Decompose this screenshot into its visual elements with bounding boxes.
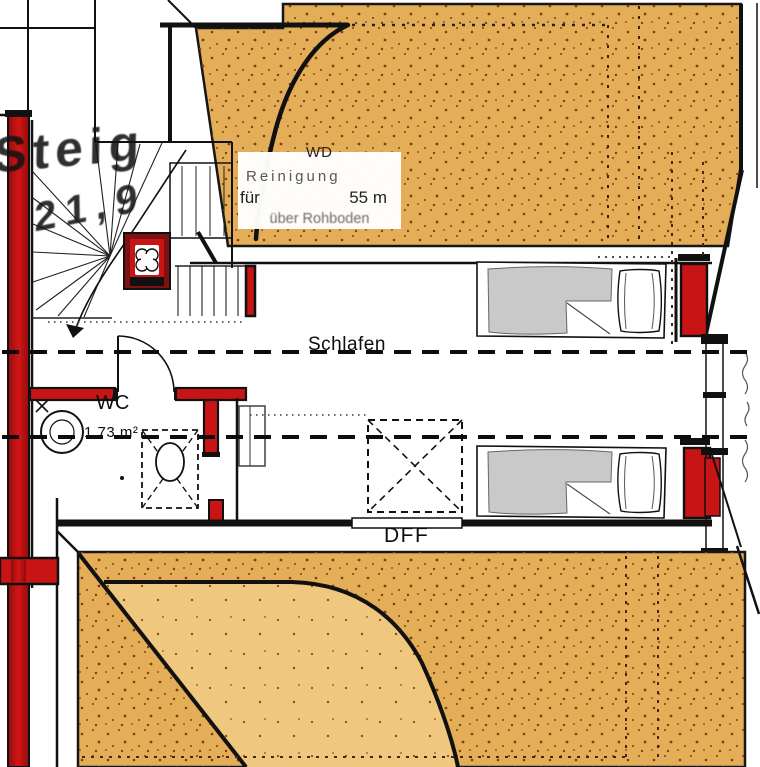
chimney-flue [136,249,158,271]
note-line-4: über Rohboden [238,211,401,227]
room-label-wc: WC [96,392,129,415]
note-line-3: für 55 m [238,188,401,208]
roof-window-label: DFF [384,524,429,548]
stair-arrow [66,324,84,338]
wall-red [0,558,58,584]
wall-red [705,458,720,516]
wall-red [681,264,707,336]
wall-red-stub [246,266,255,316]
wc-toilet [120,430,198,508]
door-arc [118,336,174,392]
annotation-note: WD Reinigung für 55 m über Rohboden [238,144,401,232]
wc-sink [36,400,83,453]
room-label-schlafen: Schlafen [308,334,386,356]
roof-window-projection [368,420,462,512]
note-line-1: WD [238,144,401,161]
chimney [124,233,170,289]
stair-treads-lower [175,266,246,316]
wall-red [204,400,218,454]
illegible-side-text [743,352,750,482]
roof-area-bottom [78,546,759,767]
note-line-3-right: 55 m [349,188,387,208]
note-line-3-left: für [240,188,260,208]
bed-1 [477,262,666,338]
note-line-2: Reinigung [238,168,401,185]
floorplan-attic: Schlafen WC 1,73 m² DFF Steig 21,9 WD Re… [0,0,760,767]
wc-area-label: 1,73 m² [84,424,138,441]
bed-2 [477,446,666,518]
wall-red [176,388,246,400]
